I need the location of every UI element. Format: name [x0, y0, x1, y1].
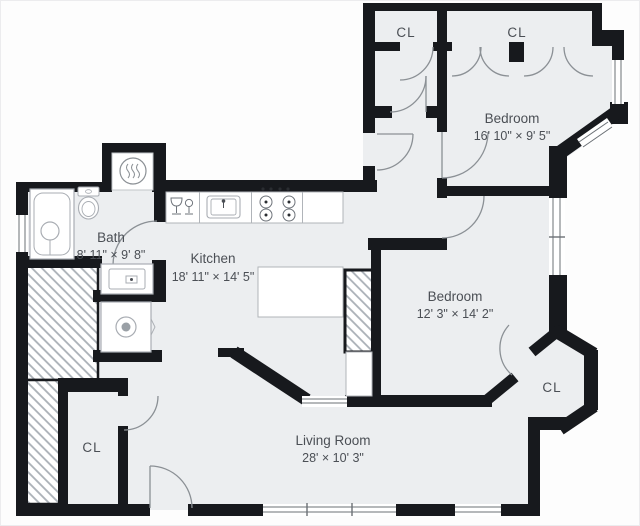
- bedroom-top-label: Bedroom: [485, 111, 540, 126]
- kitchen-dims: 18' 11" × 14' 5": [172, 270, 255, 284]
- shaft-hatch-left-lower: [26, 380, 60, 504]
- bathtub: [30, 189, 74, 259]
- kitchen-sink: [207, 196, 240, 218]
- shaft-hatch-kitchen-column: [345, 270, 373, 352]
- floor-plan-drawing: Bath 8' 11" × 9' 8" Kitchen 18' 11" × 14…: [0, 0, 640, 526]
- floor-plan: Bath 8' 11" × 9' 8" Kitchen 18' 11" × 14…: [0, 0, 640, 526]
- washer: [101, 302, 155, 352]
- radiator-icon: [112, 153, 153, 190]
- living-room-label: Living Room: [295, 433, 370, 448]
- window-bath-left: [16, 215, 28, 252]
- shaft-hatch-left-upper: [26, 266, 98, 380]
- bedroom-top-dims: 16' 10" × 9' 5": [474, 129, 551, 143]
- bedroom-middle-dims: 12' 3" × 14' 2": [417, 307, 494, 321]
- closet-bedroom-label: CL: [507, 25, 526, 40]
- bath-dims: 8' 11" × 9' 8": [77, 248, 146, 262]
- bedroom-middle-label: Bedroom: [428, 289, 483, 304]
- living-room-dims: 28' × 10' 3": [302, 451, 364, 465]
- closet-entry-label: CL: [82, 440, 101, 455]
- kitchen-counter: [166, 192, 343, 223]
- vanity-sink: [101, 264, 153, 294]
- opening-kitchen-living: [302, 396, 347, 407]
- window-living-room-1: [263, 503, 396, 516]
- window-bedroom-middle: [549, 198, 565, 275]
- window-living-room-2: [455, 504, 501, 516]
- island-counter: [258, 267, 343, 317]
- closet-bay-label: CL: [542, 380, 561, 395]
- kitchen-label: Kitchen: [190, 251, 235, 266]
- bath-label: Bath: [97, 230, 125, 245]
- window-bedroom-top-right: [612, 60, 624, 104]
- cabinet: [346, 352, 372, 396]
- toilet: [78, 187, 99, 219]
- closet-hall-label: CL: [396, 25, 415, 40]
